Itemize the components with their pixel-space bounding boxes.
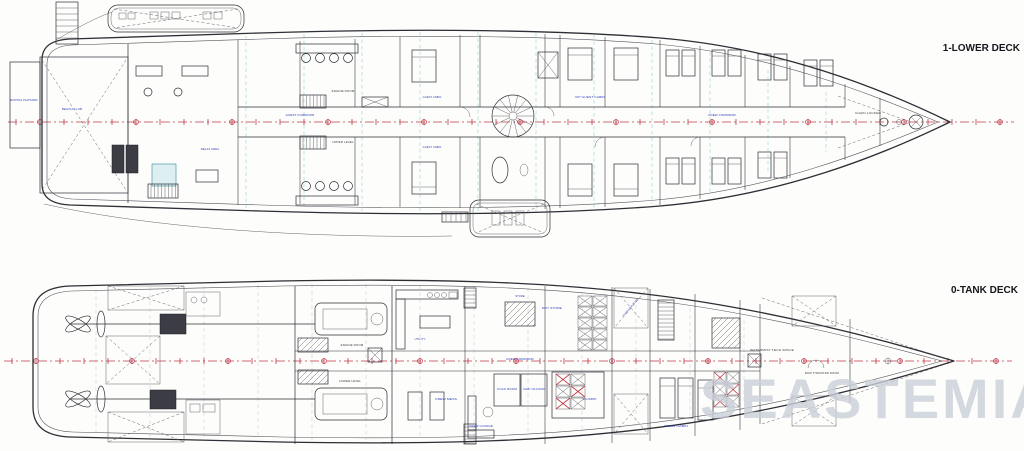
label-laundry: LAUNDRY xyxy=(583,397,597,401)
tender-boat-top xyxy=(108,5,244,32)
steam-box xyxy=(126,145,138,173)
label-store: STORE xyxy=(515,294,525,298)
label-guest-cold-room: GUEST COLD ROOM xyxy=(523,388,545,391)
propellers-and-shafts xyxy=(64,311,315,412)
label-guest-cabin: GUEST CABIN xyxy=(423,95,442,99)
stern-sheer-lines xyxy=(44,12,452,236)
label-crew-lounge: CREW LOUNGE xyxy=(469,424,493,428)
wc-fixture xyxy=(520,164,528,176)
tender-boat-bottom xyxy=(442,200,550,237)
deck-lower-plan: BATHING PLATFORM BEACH CLUB RELAX AREA E… xyxy=(8,2,1021,237)
label-beach-club: BEACH CLUB xyxy=(62,107,82,111)
deck-title-lower: 1-LOWER DECK xyxy=(943,43,1021,54)
label-relax-area: RELAX AREA xyxy=(201,147,219,151)
stern-ladder xyxy=(56,2,78,44)
label-utility: UTILITY xyxy=(414,337,425,341)
stern-equipment xyxy=(186,292,220,434)
label-chain-locker: CHAIN LOCKER xyxy=(855,111,881,115)
label-cold-room: COLD ROOM xyxy=(497,388,517,391)
yacht-ga-drawing: BATHING PLATFORM BEACH CLUB RELAX AREA E… xyxy=(0,0,1024,451)
label-guest-corridor: GUEST CORRIDOR xyxy=(286,113,316,117)
crew-cabin-bunks xyxy=(666,50,833,184)
label-crew-corridor: CREW CORRIDOR xyxy=(708,113,736,117)
label-upper-level: UPPER LEVEL xyxy=(332,140,354,144)
gearbox-port xyxy=(160,314,186,334)
label-lower-level: LOWER LEVEL xyxy=(339,379,362,383)
watermark: SEASTEMIA xyxy=(700,367,1024,430)
relax-table xyxy=(196,170,218,182)
label-crew-corridor-tank: CREW CORRIDOR xyxy=(506,357,534,361)
gearbox-stbd xyxy=(150,390,176,409)
beach-sofa xyxy=(182,66,208,76)
beach-sofa xyxy=(136,66,162,76)
galley-fittings xyxy=(396,290,458,349)
beach-chair xyxy=(174,88,182,96)
label-crew-mess: CREW MESS xyxy=(435,397,457,401)
main-engines xyxy=(315,303,387,420)
misc-structures-tank xyxy=(298,288,761,444)
label-watermist: WATERMIST TECH SPACE xyxy=(750,348,794,352)
bath-tub xyxy=(492,157,508,183)
beach-chair xyxy=(144,88,152,96)
label-engine-room-tank: ENGINE ROOM xyxy=(341,343,364,347)
ga-plan-sheet: BATHING PLATFORM BEACH CLUB RELAX AREA E… xyxy=(0,0,1024,451)
label-crew-cabin: CREW CABIN xyxy=(664,424,688,428)
crew-lounge-furniture xyxy=(468,396,494,438)
side-bathing-platform xyxy=(10,62,40,148)
label-guest-cabin-2: GUEST CABIN xyxy=(423,145,442,149)
laundry-room xyxy=(552,372,604,418)
bow-fitting xyxy=(885,358,891,364)
sauna-box xyxy=(112,145,124,173)
shower-glass-box xyxy=(152,164,176,186)
label-dry-store: DRY STORE xyxy=(542,306,562,310)
deck-title-tank: 0-TANK DECK xyxy=(951,285,1019,296)
label-vip-guest-cabin: VIP GUEST CABIN xyxy=(575,95,605,99)
spiral-staircase xyxy=(492,95,534,137)
label-engine-room: ENGINE ROOM xyxy=(332,89,355,93)
label-bathing-platform: BATHING PLATFORM xyxy=(11,99,38,102)
